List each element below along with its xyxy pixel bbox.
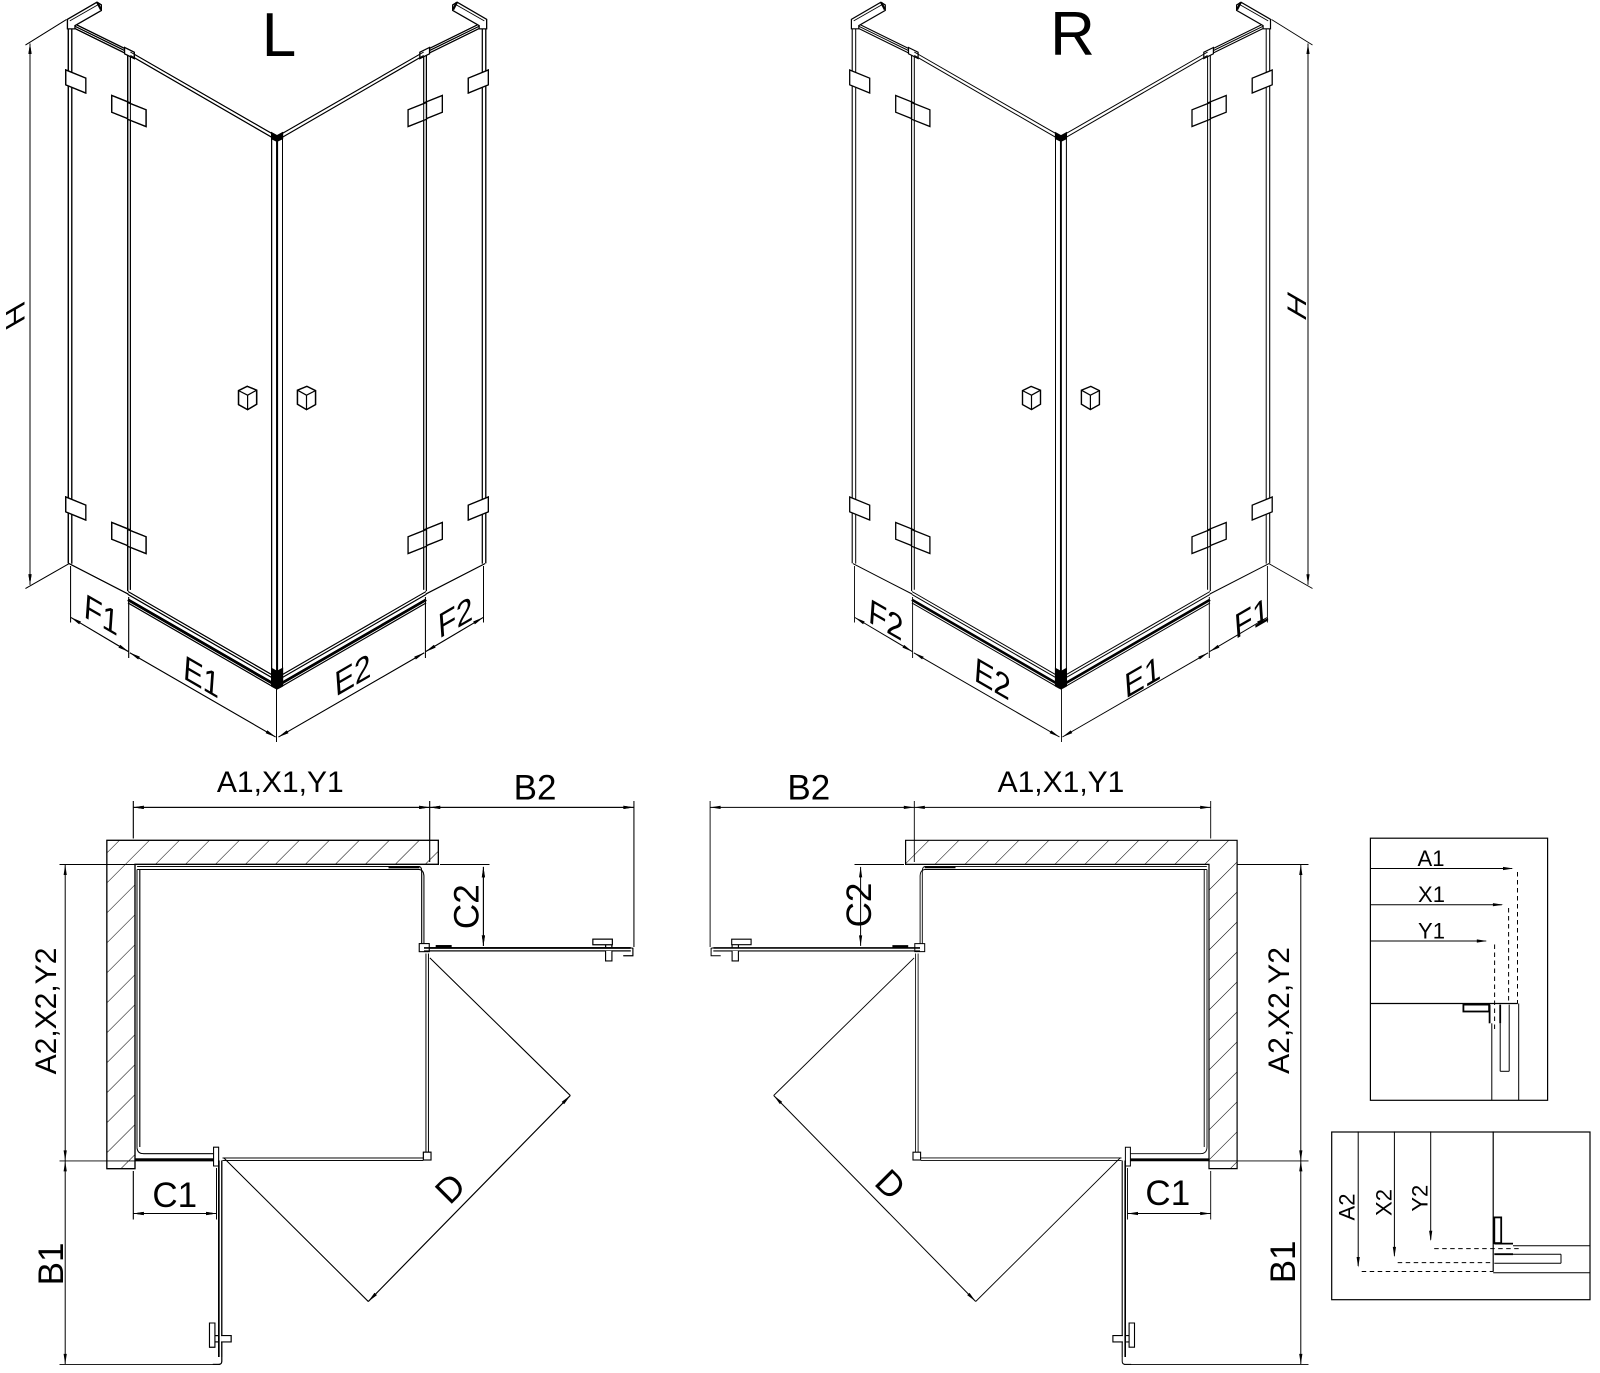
svg-text:C1: C1 <box>152 1176 197 1215</box>
svg-text:B2: B2 <box>514 769 557 808</box>
svg-text:Y1: Y1 <box>1418 919 1445 944</box>
svg-text:A1,X1,Y1: A1,X1,Y1 <box>998 766 1125 799</box>
svg-text:A2: A2 <box>1335 1194 1360 1221</box>
svg-text:X1: X1 <box>1418 882 1445 907</box>
svg-text:C1: C1 <box>1145 1174 1190 1213</box>
svg-text:B1: B1 <box>1264 1240 1303 1283</box>
svg-text:R: R <box>1050 0 1095 69</box>
svg-text:B1: B1 <box>32 1243 71 1286</box>
svg-text:Y2: Y2 <box>1407 1185 1432 1212</box>
svg-text:A1: A1 <box>1418 846 1445 871</box>
svg-text:C2: C2 <box>840 883 879 928</box>
svg-text:A1,X1,Y1: A1,X1,Y1 <box>217 766 344 799</box>
svg-text:C2: C2 <box>448 884 487 929</box>
svg-text:B2: B2 <box>787 769 830 808</box>
svg-text:A2,X2,Y2: A2,X2,Y2 <box>1263 947 1296 1074</box>
svg-text:X2: X2 <box>1372 1189 1397 1216</box>
svg-text:A2,X2,Y2: A2,X2,Y2 <box>30 948 63 1075</box>
svg-text:L: L <box>262 1 296 70</box>
